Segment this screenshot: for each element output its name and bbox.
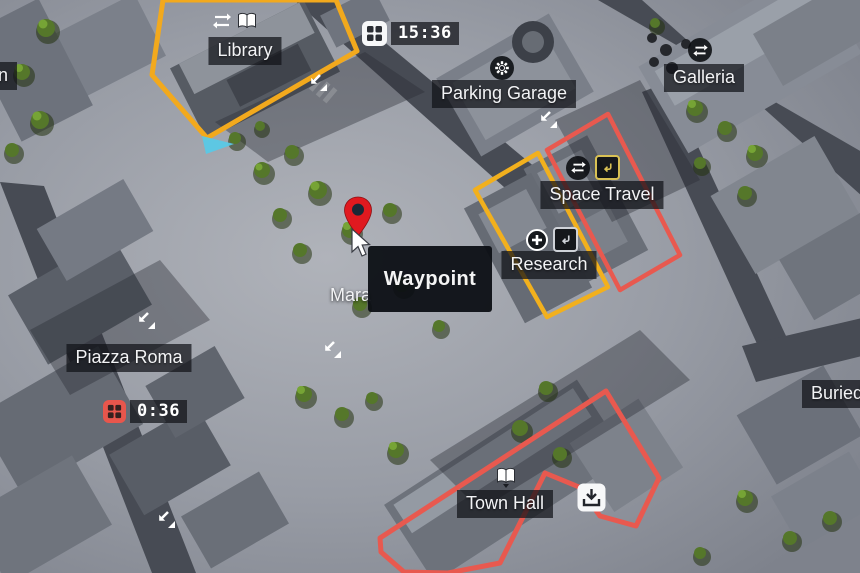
timer-red: 0:36	[103, 400, 187, 423]
space-travel-icons	[566, 155, 620, 180]
window-grid-icon	[362, 21, 387, 46]
waypoint-tooltip-label: Waypoint	[384, 268, 476, 291]
transfer-icon	[212, 12, 232, 30]
label-space-travel: Space Travel	[540, 181, 663, 209]
collect-box-icon[interactable]	[577, 483, 606, 517]
window-grid-icon	[103, 400, 126, 423]
parking-garage-icons	[490, 56, 514, 80]
plus-circle-icon	[526, 229, 548, 251]
descend-arrows-icon	[538, 110, 560, 137]
label-library: Library	[208, 37, 281, 65]
timer-value: 0:36	[130, 400, 187, 423]
library-icons	[212, 12, 257, 30]
timer-value: 15:36	[391, 22, 459, 45]
quest-badge-icon	[595, 155, 620, 180]
mouse-cursor-icon	[350, 228, 374, 265]
descend-arrows-icon	[322, 340, 344, 367]
label-parking-garage: Parking Garage	[432, 80, 576, 108]
quest-badge-icon	[553, 227, 578, 252]
player-marker-icon	[201, 133, 235, 160]
book-icon	[237, 12, 257, 30]
label-mara-partial: Mara	[330, 285, 371, 306]
descend-arrows-icon	[156, 510, 178, 537]
label-galleria: Galleria	[664, 64, 744, 92]
label-town-hall: Town Hall	[457, 490, 553, 518]
transfer-icon	[566, 156, 590, 180]
gear-icon	[490, 56, 514, 80]
book-icon	[496, 467, 516, 494]
transfer-icon	[688, 38, 712, 62]
label-buried-partial: Buried	[802, 380, 860, 408]
label-research: Research	[501, 251, 596, 279]
research-icons	[526, 227, 578, 252]
label-piazza-roma: Piazza Roma	[66, 344, 191, 372]
timer-white: 15:36	[362, 21, 459, 46]
label-station-partial: tion	[0, 62, 17, 90]
galleria-icons	[688, 38, 712, 62]
waypoint-tooltip: Waypoint	[368, 246, 492, 312]
game-map[interactable]: tion Library Parking Garage Galleria Spa…	[0, 0, 860, 573]
descend-arrows-icon	[136, 311, 158, 338]
descend-arrows-icon	[308, 73, 330, 100]
